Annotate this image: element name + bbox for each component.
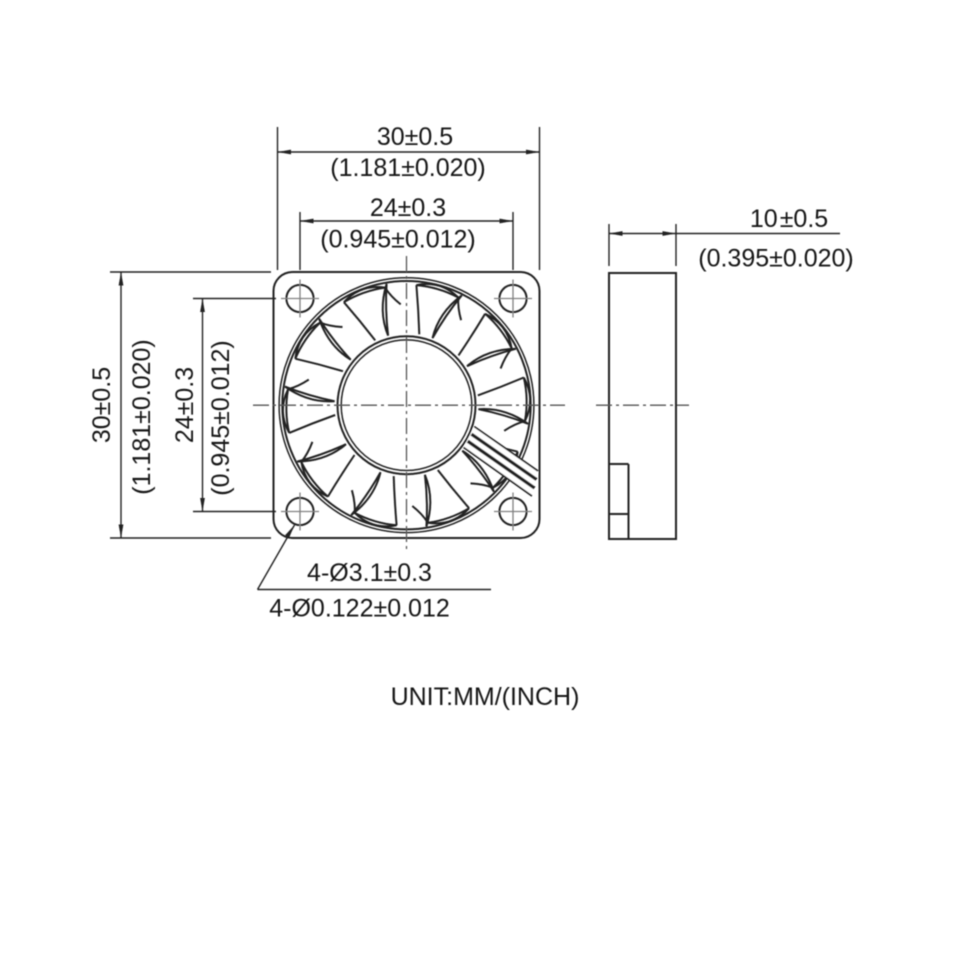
svg-text:(1.181±0.020): (1.181±0.020)	[128, 339, 156, 495]
svg-text:(0.395±0.020): (0.395±0.020)	[698, 244, 854, 272]
svg-text:(0.945±0.012): (0.945±0.012)	[207, 340, 235, 496]
svg-text:30±0.5: 30±0.5	[377, 123, 453, 151]
svg-text:(0.945±0.012): (0.945±0.012)	[320, 225, 476, 253]
svg-text:24±0.3: 24±0.3	[171, 367, 199, 443]
svg-text:4-Ø0.122±0.012: 4-Ø0.122±0.012	[269, 594, 450, 622]
svg-text:(1.181±0.020): (1.181±0.020)	[330, 154, 486, 182]
svg-text:24±0.3: 24±0.3	[370, 194, 446, 222]
svg-text:4-Ø3.1±0.3: 4-Ø3.1±0.3	[307, 559, 432, 587]
svg-text:30±0.5: 30±0.5	[88, 367, 116, 443]
svg-text:10 ±0.5: 10 ±0.5	[750, 205, 828, 233]
svg-text:UNIT:MM/(INCH): UNIT:MM/(INCH)	[391, 683, 580, 711]
